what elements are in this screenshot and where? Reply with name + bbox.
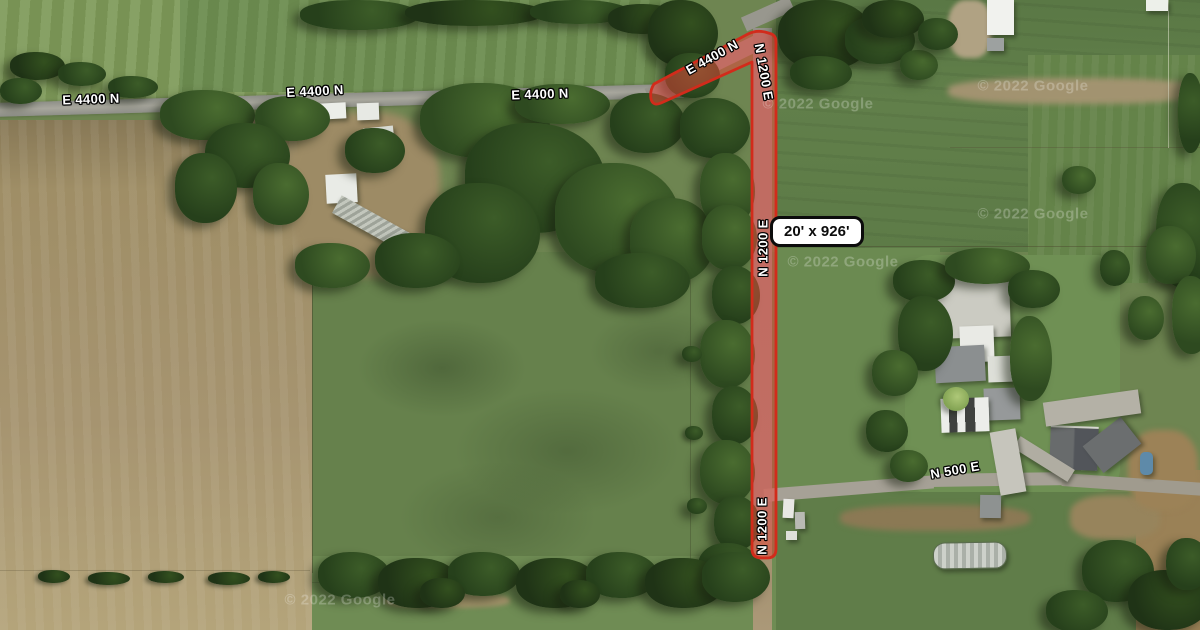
measurement-label: 20' x 926': [770, 216, 864, 247]
road-label-e4400n: E 4400 N: [511, 86, 569, 103]
road-label-n1200e: N 1200 E: [756, 219, 771, 276]
road-label-n1200e: N 1200 E: [755, 497, 770, 554]
google-watermark: © 2022 Google: [763, 96, 874, 113]
satellite-map[interactable]: © 2022 Google © 2022 Google © 2022 Googl…: [0, 0, 1200, 630]
parcel-overlay: [0, 0, 1200, 630]
google-watermark: © 2022 Google: [788, 254, 899, 271]
google-watermark: © 2022 Google: [978, 206, 1089, 223]
road-label-e4400n: E 4400 N: [286, 82, 344, 100]
google-watermark: © 2022 Google: [285, 592, 396, 609]
google-watermark: © 2022 Google: [978, 78, 1089, 95]
parcel-path[interactable]: [651, 31, 776, 558]
road-label-e4400n: E 4400 N: [62, 91, 120, 108]
